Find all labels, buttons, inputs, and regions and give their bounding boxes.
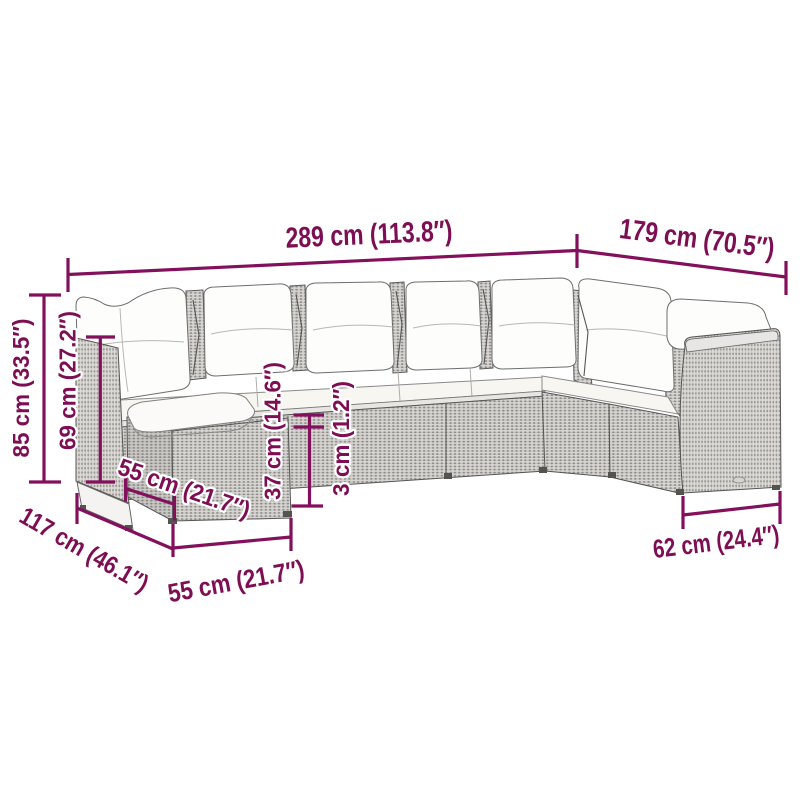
svg-text:69 cm (27.2″): 69 cm (27.2″)	[55, 311, 81, 450]
svg-text:37 cm (14.6″): 37 cm (14.6″)	[259, 362, 285, 500]
svg-text:85 cm (33.5″): 85 cm (33.5″)	[8, 319, 34, 458]
svg-text:3 cm (1.2″): 3 cm (1.2″)	[328, 381, 354, 496]
